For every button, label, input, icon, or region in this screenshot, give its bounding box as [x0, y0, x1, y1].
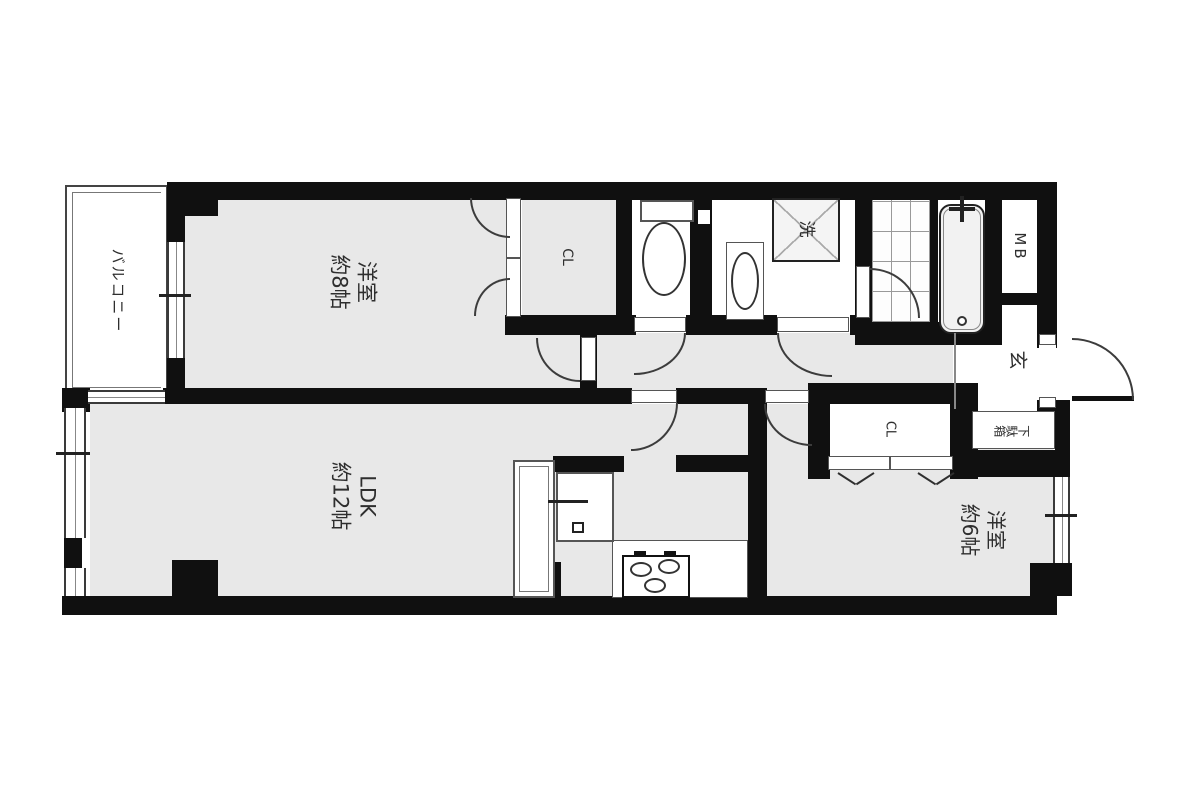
- wall-bath-left: [855, 185, 872, 345]
- closet2-door-split: [889, 456, 891, 470]
- toilet-corner-box-inner: [698, 210, 710, 224]
- kitchen-stub-east: [676, 455, 748, 472]
- wall-bottom: [62, 596, 1057, 615]
- wall-balcony-room-top: [167, 200, 185, 242]
- shoe-cabinet-label: 下駄箱: [994, 422, 1030, 438]
- wall-bath-divider: [930, 200, 938, 322]
- sink-faucet: [548, 500, 588, 503]
- bathroom-door: [856, 266, 870, 318]
- bedroom1-label: 洋室 約8帖: [325, 254, 380, 309]
- wall-closet2-top: [808, 383, 972, 404]
- bathtub-inner-line: [943, 208, 981, 330]
- bath-drain: [957, 316, 967, 326]
- wall-right-upper: [1037, 182, 1057, 348]
- laundry-label: 洗: [795, 221, 817, 238]
- bedroom1-size: 約8帖: [325, 254, 352, 309]
- bedroom2-label: 洋室 約6帖: [957, 504, 1009, 557]
- wall-corridor-west: [597, 388, 632, 404]
- window-ldk-left: [64, 408, 86, 538]
- bedroom2-name: 洋室: [983, 504, 1009, 557]
- bedroom1-name: 洋室: [352, 254, 379, 309]
- folding-door-mark: [918, 472, 954, 494]
- stove-burner: [658, 559, 680, 574]
- wall-top: [167, 182, 1057, 200]
- window-ldk-balcony: [88, 390, 165, 404]
- floor-plan: バルコニー 洋室 約8帖 LDK 約12帖 洋室 約6帖 CL CL MB 玄 …: [0, 0, 1200, 800]
- window-bedroom2-right: [1053, 477, 1070, 563]
- toilet-door: [634, 317, 686, 332]
- ldk-pillar: [172, 560, 218, 598]
- folding-door-mark: [838, 472, 874, 494]
- balcony-label: バルコニー: [107, 249, 127, 334]
- stove-knob: [664, 551, 676, 555]
- wash-basin: [731, 252, 759, 310]
- kitchen-stub-west: [553, 456, 624, 472]
- window-divider-left: [64, 538, 82, 568]
- ldk-door: [631, 390, 677, 403]
- window-tick: [56, 452, 90, 455]
- genkan-step-line: [954, 333, 956, 409]
- genkan-nook-floor: [1002, 303, 1037, 345]
- wall-bedroom1-bottom: [163, 388, 597, 404]
- bedroom2-door: [765, 390, 809, 403]
- kitchen-sink: [556, 472, 614, 542]
- wall-ldk-bedroom2: [748, 388, 767, 598]
- wall-right-bedroom2-upper: [1055, 410, 1070, 452]
- meter-box-label: MB: [1009, 232, 1029, 261]
- entrance-opening: [1039, 345, 1056, 398]
- wall-toilet-right: [690, 228, 712, 317]
- wall-bath-right: [985, 200, 1002, 345]
- toilet-bowl: [642, 222, 686, 296]
- wall-band-closet1: [505, 315, 636, 335]
- toilet-tank: [640, 200, 694, 222]
- ldk-size: 約12帖: [326, 462, 353, 531]
- stove-knob: [634, 551, 646, 555]
- wall-mb-divider: [1000, 293, 1040, 305]
- window-tick: [1045, 514, 1077, 517]
- closet2-label: CL: [881, 421, 898, 437]
- kitchen-cabinet-inner-line: [519, 466, 549, 592]
- entrance-label: 玄: [1005, 350, 1030, 369]
- wall-corridor-east: [676, 388, 748, 404]
- stove-burner: [630, 562, 652, 577]
- wall-bedroom2-corner: [1030, 563, 1072, 596]
- closet1-label: CL: [558, 248, 576, 266]
- wall-closet1-right: [616, 200, 632, 317]
- bedroom2-size: 約6帖: [957, 504, 983, 557]
- bath-faucet-icon: [960, 196, 964, 222]
- entrance-jamb-top: [1039, 334, 1056, 345]
- wall-genkan-bottom: [955, 450, 1070, 477]
- bedroom1-door: [581, 337, 596, 381]
- window-ldk-left-lower: [64, 568, 86, 596]
- window-balcony-bedroom1: [167, 242, 185, 358]
- window-tick: [159, 294, 191, 297]
- entrance-jamb-bottom: [1039, 397, 1056, 408]
- sink-drain: [572, 522, 584, 533]
- ldk-label: LDK 約12帖: [326, 462, 381, 531]
- entrance-door-arc: [1072, 338, 1134, 400]
- closet1-door-split: [506, 257, 521, 259]
- stove-burner: [644, 578, 666, 593]
- washroom-door: [777, 317, 849, 332]
- ldk-name: LDK: [353, 462, 380, 531]
